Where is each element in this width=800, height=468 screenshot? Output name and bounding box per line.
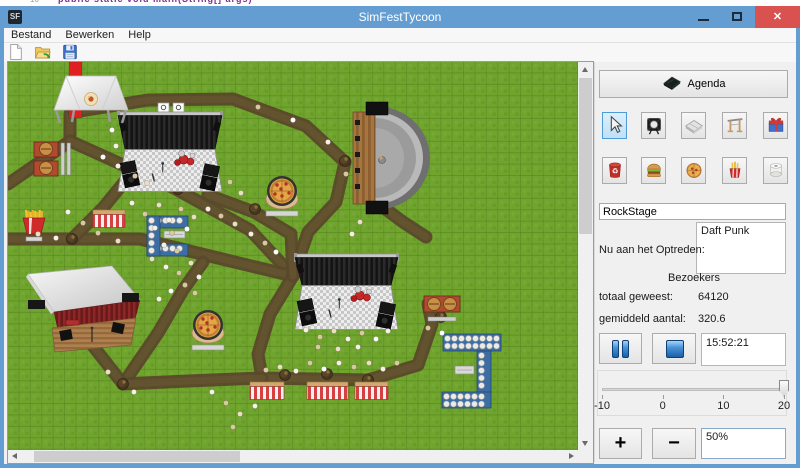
screen: 10 public static void main(String[] args…: [0, 0, 800, 468]
visitor: [307, 360, 312, 365]
visitor: [109, 127, 114, 132]
background-code-text: public static void main(String[] args): [58, 0, 253, 4]
slider-tick-label: 20: [778, 400, 790, 412]
visitor: [303, 327, 308, 332]
now-performing-artist: Daft Punk: [701, 225, 749, 237]
visitor: [209, 389, 214, 394]
scroll-left-arrow[interactable]: [8, 450, 22, 463]
slider-tick: [663, 395, 664, 399]
scaffold-icon: [724, 114, 746, 136]
visitor: [218, 213, 223, 218]
visitor: [252, 403, 257, 408]
visitor: [331, 328, 336, 333]
notebook-icon: [662, 75, 682, 91]
tree: [280, 370, 291, 381]
minimize-icon: [698, 19, 709, 21]
now-performing-box: Daft Punk: [696, 222, 786, 274]
scaffold-tool-button[interactable]: [722, 112, 747, 139]
striped-stall[interactable]: [307, 382, 348, 400]
minimize-button[interactable]: [687, 6, 721, 28]
visitor: [263, 367, 268, 372]
time-display: 15:52:21: [701, 333, 786, 366]
visitor: [255, 104, 260, 109]
scroll-right-arrow[interactable]: [564, 450, 578, 463]
visitor: [325, 139, 330, 144]
visitor: [349, 231, 354, 236]
tree: [67, 234, 78, 245]
main-stage[interactable]: [117, 103, 223, 192]
roll-icon: [765, 159, 787, 181]
visitor: [176, 270, 181, 275]
menu-bar: BestandBewerkenHelp: [4, 28, 796, 43]
visitor: [237, 411, 242, 416]
visitor: [238, 190, 243, 195]
visitor: [343, 171, 348, 176]
visitor: [166, 217, 171, 222]
stage-platform-tool-button[interactable]: [681, 112, 706, 139]
spotlight-icon: [643, 114, 665, 136]
visitor: [439, 330, 444, 335]
toilet-block[interactable]: [477, 351, 491, 393]
slider-track[interactable]: [602, 388, 784, 391]
visitor: [357, 219, 362, 224]
visitor: [149, 256, 154, 261]
maximize-button[interactable]: [721, 6, 755, 28]
fries-icon: [724, 159, 746, 181]
pause-icon: [611, 340, 631, 358]
visitor: [188, 260, 193, 265]
menu-item-bestand[interactable]: Bestand: [4, 28, 58, 41]
tree: [340, 156, 351, 167]
visitor: [230, 424, 235, 429]
menu-item-help[interactable]: Help: [121, 28, 158, 41]
toilet-tool-button[interactable]: [763, 157, 788, 184]
visitor: [366, 360, 371, 365]
visitor: [232, 221, 237, 226]
zoom-out-button[interactable]: −: [652, 428, 696, 459]
festival-map-canvas[interactable]: [8, 62, 578, 450]
window-controls: ✕: [687, 6, 800, 28]
toilet-block[interactable]: [442, 392, 491, 408]
slider-tick: [784, 395, 785, 399]
visitor: [290, 117, 295, 122]
visitor: [321, 366, 326, 371]
visitor: [223, 400, 228, 405]
toolbar: [4, 43, 796, 62]
pizza-icon: [683, 159, 705, 181]
visitor: [315, 344, 320, 349]
slider-tick-label: 0: [660, 400, 666, 412]
visitor: [35, 231, 40, 236]
window-border-right: [796, 28, 800, 464]
visitor: [277, 364, 282, 369]
speed-slider[interactable]: -1001020: [597, 370, 787, 416]
zoom-level-field[interactable]: 50%: [701, 428, 786, 459]
visitor: [184, 226, 189, 231]
gift-shop-tool-button[interactable]: [763, 112, 788, 139]
visitor: [156, 296, 161, 301]
stage-name-input[interactable]: [599, 203, 786, 220]
visitor: [355, 344, 360, 349]
maximize-icon: [732, 12, 742, 21]
titlebar[interactable]: SF SimFestTycoon ✕: [0, 6, 800, 28]
visitor: [196, 274, 201, 279]
spotlight-tool-button[interactable]: [641, 112, 666, 139]
visitor: [182, 282, 187, 287]
visitor: [80, 220, 85, 225]
save-button[interactable]: [58, 43, 82, 62]
visitor: [335, 346, 340, 351]
visitor: [227, 179, 232, 184]
visitor: [131, 389, 136, 394]
visitor: [385, 328, 390, 333]
total-visitors-label: totaal geweest:: [599, 291, 673, 303]
platform-icon: [683, 114, 705, 136]
visitor: [65, 209, 70, 214]
visitor: [152, 225, 157, 230]
visitors-header: Bezoekers: [595, 272, 793, 284]
toilet-block[interactable]: [147, 216, 160, 256]
visitor: [169, 230, 174, 235]
tree: [250, 204, 261, 215]
scroll-up-arrow[interactable]: [578, 62, 593, 76]
visitor: [262, 240, 267, 245]
slider-tick-label: -10: [594, 400, 610, 412]
open-folder-icon: [34, 43, 52, 61]
visitor: [293, 368, 298, 373]
visitor: [95, 230, 100, 235]
visitor: [142, 211, 147, 216]
slider-tick-label: 10: [717, 400, 729, 412]
striped-stall[interactable]: [250, 382, 284, 400]
visitor: [336, 360, 341, 365]
scroll-down-arrow[interactable]: [578, 436, 593, 450]
visitor: [129, 200, 134, 205]
save-floppy-icon: [61, 43, 79, 61]
new-document-icon: [7, 43, 25, 61]
visitor: [248, 231, 253, 236]
vertical-scroll-thumb[interactable]: [579, 78, 592, 234]
visitor: [394, 360, 399, 365]
svg-text:♻: ♻: [611, 167, 618, 176]
agenda-button[interactable]: Agenda: [599, 70, 788, 98]
zoom-in-button[interactable]: +: [599, 428, 642, 459]
horizontal-scroll-thumb[interactable]: [34, 451, 240, 462]
trash-icon: ♻: [604, 159, 626, 181]
striped-stall[interactable]: [355, 382, 388, 400]
festival-map[interactable]: [8, 62, 578, 450]
visitor: [144, 180, 149, 185]
visitor: [132, 173, 137, 178]
agenda-button-label: Agenda: [688, 78, 726, 90]
close-button[interactable]: ✕: [755, 6, 800, 28]
menu-item-bewerken[interactable]: Bewerken: [58, 28, 121, 41]
visitor: [345, 336, 350, 341]
side-panel: Agenda ♻ Daft Punk Nu aan het Optreden: …: [594, 62, 792, 462]
visitor: [351, 364, 356, 369]
burger-icon: [643, 159, 665, 181]
window-title: SimFestTycoon: [0, 6, 800, 28]
open-file-button[interactable]: [31, 43, 55, 62]
now-performing-label: Nu aan het Optreden:: [599, 244, 705, 256]
stop-icon: [666, 340, 684, 358]
average-visitors-label: gemiddeld aantal:: [599, 313, 686, 325]
background-line-number: 10: [30, 0, 39, 4]
visitor: [425, 325, 430, 330]
slider-tick: [723, 395, 724, 399]
visitor: [115, 163, 120, 168]
visitor: [192, 290, 197, 295]
visitor: [53, 235, 58, 240]
burger-stand-tool-button[interactable]: [641, 157, 666, 184]
new-document-button[interactable]: [4, 43, 28, 62]
visitor: [373, 336, 378, 341]
bench[interactable]: [455, 366, 474, 374]
trash-tool-button[interactable]: ♻: [602, 157, 627, 184]
visitor: [100, 154, 105, 159]
visitor: [163, 264, 168, 269]
visitor: [273, 249, 278, 254]
stop-button[interactable]: [652, 333, 696, 364]
visitor: [105, 369, 110, 374]
visitor: [161, 242, 166, 247]
visitor: [113, 143, 118, 148]
visitor: [359, 330, 364, 335]
cursor-icon: [604, 114, 626, 136]
vertical-scrollbar[interactable]: [578, 62, 593, 450]
toilet-block[interactable]: [443, 334, 501, 351]
visitor: [317, 334, 322, 339]
gift-icon: [765, 114, 787, 136]
visitor: [205, 206, 210, 211]
visitor: [115, 238, 120, 243]
tree: [118, 379, 129, 390]
visitor: [156, 202, 161, 207]
fries-stand-tool-button[interactable]: [722, 157, 747, 184]
visitor: [191, 214, 196, 219]
visitor: [380, 366, 385, 371]
total-visitors-value: 64120: [698, 291, 729, 303]
visitor: [174, 248, 179, 253]
select-tool-button[interactable]: [602, 112, 627, 139]
main-stage[interactable]: [294, 253, 399, 330]
pizza-stand-tool-button[interactable]: [681, 157, 706, 184]
striped-stall[interactable]: [93, 210, 125, 228]
window-border-bottom: [0, 464, 800, 468]
burger-stand[interactable]: [424, 296, 460, 321]
pause-button[interactable]: [599, 333, 642, 364]
visitor: [168, 288, 173, 293]
scrollbar-corner: [578, 450, 593, 463]
visitor: [178, 206, 183, 211]
slider-tick: [602, 395, 603, 399]
horizontal-scrollbar[interactable]: [8, 450, 578, 463]
average-visitors-value: 320.6: [698, 313, 726, 325]
